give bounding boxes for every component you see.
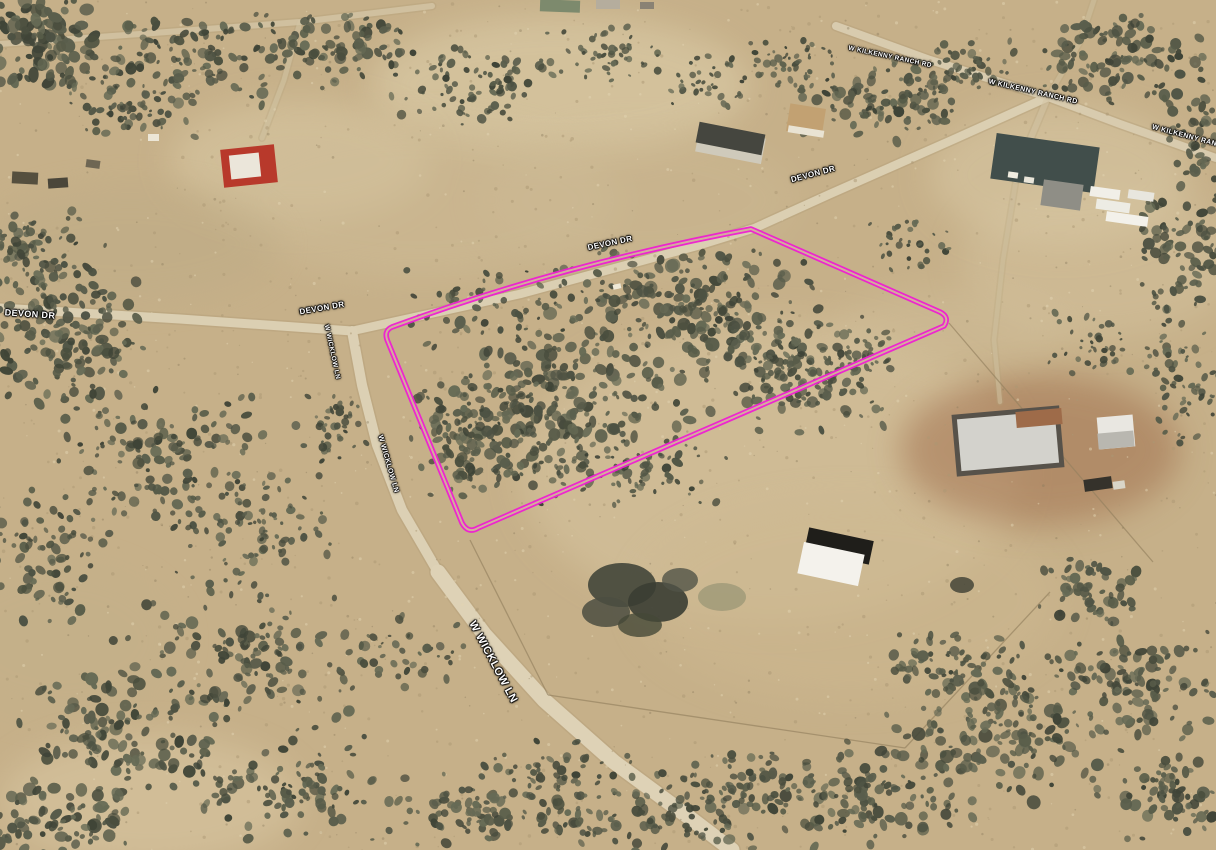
building-top-shed-1 (596, 0, 620, 9)
building-complex-small-building (1040, 179, 1083, 210)
building-green-roof-building (540, 0, 580, 13)
building-farm-building-white (229, 152, 261, 179)
terrain-canvas (0, 0, 1216, 850)
building-farm-junk-2 (48, 177, 69, 188)
building-house-shed-roof (1097, 430, 1134, 449)
building-farm-junk-1 (12, 171, 39, 184)
aerial-satellite-view[interactable]: DEVON DRDEVON DRDEVON DRDEVON DRW WICKLO… (0, 0, 1216, 850)
building-house-car-white (1113, 480, 1126, 490)
building-top-shed-2 (640, 2, 654, 9)
building-farm-car (148, 134, 159, 141)
